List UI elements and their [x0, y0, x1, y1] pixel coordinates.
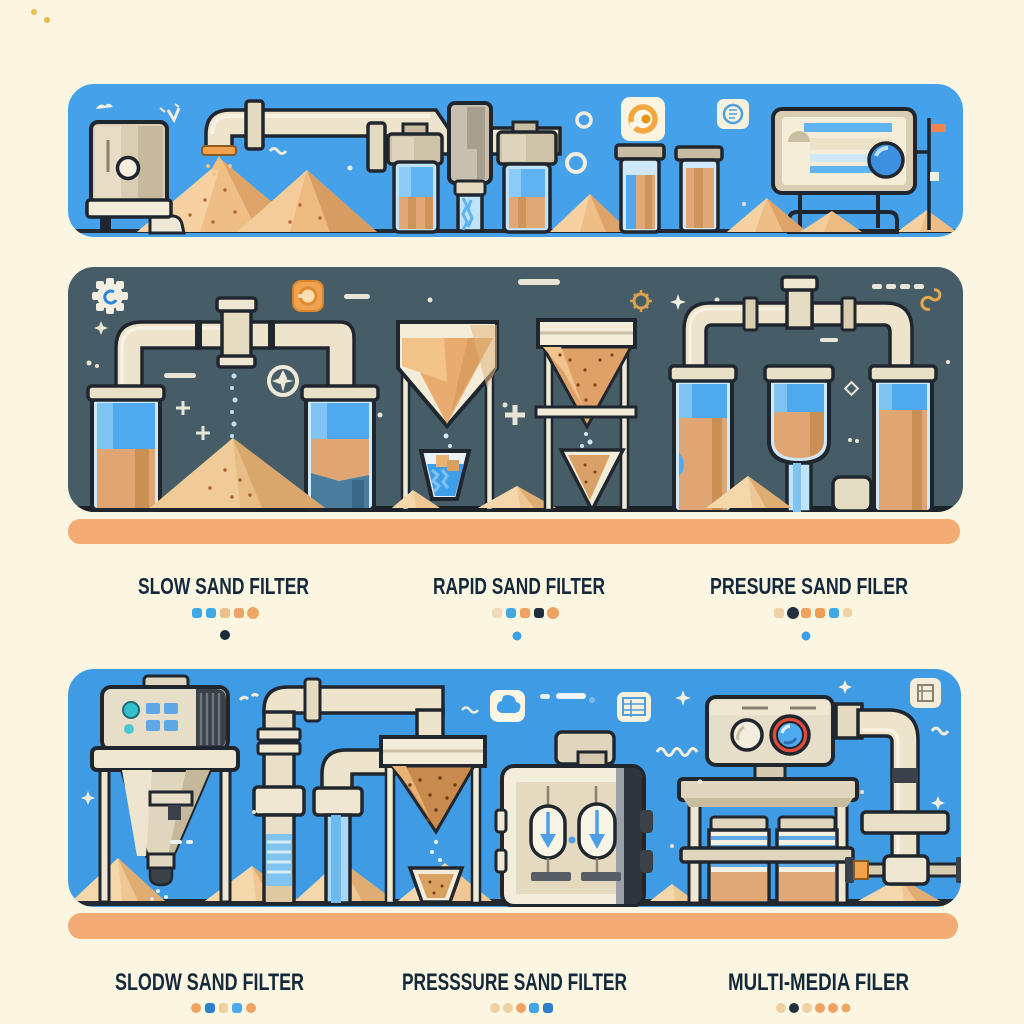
- svg-text:PRESSSURE SAND FILTER: PRESSSURE SAND FILTER: [402, 969, 627, 996]
- svg-text:PRESURE SAND FILER: PRESURE SAND FILER: [710, 573, 908, 599]
- svg-text:MULTI-MEDIA FILER: MULTI-MEDIA FILER: [728, 969, 909, 996]
- svg-text:SLOW SAND FILTER: SLOW SAND FILTER: [138, 573, 309, 599]
- svg-text:SLODW SAND FILTER: SLODW SAND FILTER: [115, 969, 304, 996]
- svg-text:RAPID SAND FILTER: RAPID SAND FILTER: [433, 573, 605, 599]
